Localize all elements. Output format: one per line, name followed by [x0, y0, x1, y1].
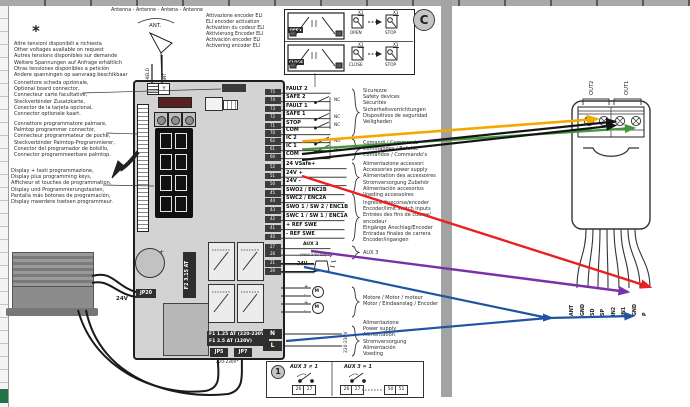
b-unit-fan-wires	[577, 229, 650, 288]
jp20-connector: JP20	[136, 289, 156, 298]
eli-x1-label: X1	[393, 42, 399, 48]
terminal-block: 26	[265, 251, 281, 258]
section-marker-c: C	[413, 9, 435, 31]
encoder-inputs-group-label: Ingressi finecorsa/encoder Encoder/limit…	[363, 200, 433, 243]
antenna-title: Antenna - Antenne - Antena - Antenne	[104, 8, 210, 13]
terminal-block: 70	[265, 130, 281, 137]
relay	[237, 242, 264, 281]
contact-symbols	[315, 97, 331, 159]
terminal-label: SAFE 1	[286, 111, 306, 117]
terminal-block: 60	[265, 154, 281, 161]
terminal-label: - REF SWE	[286, 231, 315, 237]
aux-group-label: AUX 3	[363, 250, 378, 256]
out2-label: OUT2	[589, 71, 595, 95]
nc-contact-label: NC	[334, 114, 340, 119]
terminal-label: COM	[286, 151, 299, 157]
terminal-label: SWO2 / ENC2B	[286, 187, 327, 193]
terminal-block: 75	[265, 89, 281, 96]
terminal-label: SWC2 / ENC2A	[286, 195, 326, 201]
motor-symbol-label: M	[315, 305, 320, 310]
terminal-block: 74	[265, 97, 281, 104]
terminal-label: FAULT 1	[286, 103, 308, 109]
nc-contact-label: NC	[334, 97, 340, 102]
terminal-block: 42	[265, 216, 281, 223]
blue-junction-arrowhead	[543, 314, 554, 322]
aux3-eq-1-label: AUX 3 = 1	[344, 364, 372, 370]
pin-label: IN2	[612, 290, 617, 316]
wire-ic1-to-out1	[302, 128, 634, 150]
terminal-label: IC 1	[286, 143, 297, 149]
eli-open-icon-label: OPEN	[350, 30, 362, 35]
spreadsheet-row-header	[0, 6, 9, 407]
lamp-motor-mains	[281, 253, 342, 346]
wire-24v-to-p	[302, 176, 650, 287]
terminal-block: 43	[265, 207, 281, 214]
jp7-connector: JP7	[234, 348, 252, 357]
seven-segment-display	[155, 128, 193, 218]
terminal-cell-27: 27	[351, 385, 364, 395]
motor-sign: +	[304, 284, 308, 290]
terminal-block: 73	[265, 106, 281, 113]
nc-contact-label: NC	[334, 122, 340, 127]
terminal-block: 41	[265, 225, 281, 232]
pin-label: GND	[633, 290, 638, 316]
terminal-block: 21	[265, 260, 281, 267]
pin-label: P	[643, 290, 648, 316]
motor-sign: -	[304, 308, 306, 314]
terminal-label: SWO 1 / SW 2 / ENC1B	[286, 204, 348, 210]
wiring-diagram-page: { "page": { "marker_c": "C", "asterisk":…	[0, 0, 690, 407]
terminal-block: 45	[265, 190, 281, 197]
motor-group-label: Motore / Motor / moteur Motor / Eindaans…	[363, 295, 438, 307]
terminal-block: 50	[265, 181, 281, 188]
wire-junction-to-gnd	[549, 316, 633, 318]
voltages-note: Altre tensioni disponibili a richiesta O…	[14, 41, 146, 78]
aux3-neq-1-label: AUX 3 ≠ 1	[290, 364, 318, 370]
wire-com-to-out1-b	[302, 126, 615, 161]
image-divider-bar	[441, 0, 452, 397]
mains-voltage-vertical-label: 220-230V	[344, 323, 349, 353]
wire-com-to-out1-a	[302, 122, 615, 155]
onboard-transformer	[163, 303, 209, 356]
terminal-block: 52	[265, 164, 281, 171]
eli-stop-icon-label: STOP	[385, 62, 396, 67]
no-contact-label: NO	[334, 138, 340, 143]
display-keys-note: Display + tasti programmazione, Display …	[11, 168, 143, 205]
pin-label: IN1	[622, 290, 627, 316]
fuse1-line2: F1 2.5 AT (120V)	[209, 338, 269, 345]
eli-note: Attivazione encoder ELI ELI encoder acti…	[206, 14, 286, 49]
fuse1-badge: F1 1.25 AT (220-230V) F1 2.5 AT (120V)	[207, 331, 269, 346]
mains-terminal-l: L	[263, 341, 282, 351]
optional-board-note: Connettore scheda opzionale, Optional bo…	[14, 80, 146, 117]
motor-sign: -	[304, 292, 306, 298]
wire-mains-to-junction	[286, 318, 548, 341]
aux3-sub-label: (MAX 24V 1A)	[300, 252, 326, 257]
external-transformer	[12, 252, 94, 288]
terminal-block: 51	[265, 173, 281, 180]
pin-label: SP	[601, 290, 606, 316]
motor-symbol-label: M	[315, 289, 320, 294]
b-unit-connector	[572, 99, 650, 288]
terminal-block: 71	[265, 123, 281, 130]
terminal-block: 61	[265, 146, 281, 153]
spreadsheet-selected-cell	[0, 389, 8, 403]
fuse2-label: F2 3.15 AT	[185, 254, 190, 296]
capacitor: +	[135, 248, 165, 278]
eli-close-icon-label: CLOSE	[349, 62, 363, 67]
out1-label: OUT1	[624, 71, 630, 95]
terminal-label: + REF SWE	[286, 222, 317, 228]
antenna-label: ANT.	[149, 23, 161, 29]
accessories-power-group-label: Alimentazione accessori Accessories powe…	[363, 161, 436, 198]
terminal-label: COM	[286, 127, 299, 133]
program-button[interactable]	[168, 112, 182, 127]
terminal-block: 72	[265, 114, 281, 121]
palmtop-note: Connettore programmatore palmare, Palmto…	[14, 121, 146, 158]
spreadsheet-column-header	[0, 0, 690, 6]
wire-aux3-to-in1	[311, 251, 628, 292]
jp5-connector: JP5	[210, 348, 228, 357]
terminal-label: IC 2	[286, 135, 297, 141]
b-unit-label: B	[606, 148, 611, 157]
aux3-terminal-label: AUX 3	[303, 242, 318, 247]
terminal-label: SWC 1 / SW 1 / ENC1A	[286, 213, 348, 219]
pin-label: ANT	[570, 290, 575, 316]
eli-open-switch-label: OPEN	[288, 27, 303, 33]
safety-group-label: Sicurezze Safety devices Sécurités Siche…	[363, 88, 427, 125]
fuse1-line1: F1 1.25 AT (220-230V)	[209, 331, 269, 338]
ant-wire-label: ANT	[163, 62, 168, 82]
relay	[208, 284, 235, 323]
motor-sign: +	[304, 300, 308, 306]
terminal-label: 24V +	[286, 170, 303, 176]
terminal-cell-27: 27	[303, 385, 316, 395]
palmtop-programmer-connector	[137, 104, 149, 232]
group-braces	[352, 89, 359, 356]
fuse2-badge: F2 3.15 AT	[183, 252, 196, 298]
relay	[237, 284, 264, 323]
eli-x1-label: X1	[393, 10, 399, 16]
pin-label: GND	[581, 290, 586, 316]
mains-voltage-note: 220-230V*	[216, 359, 238, 364]
terminal-cell-51: 51	[395, 385, 408, 395]
asterisk-footnote-mark: *	[32, 22, 40, 40]
display-connector-strip	[158, 97, 192, 108]
mains-terminal-n: N	[263, 329, 282, 339]
terminal-block: 20	[265, 268, 281, 275]
terminal-label: 24 VSafe+	[286, 161, 315, 167]
no-contact-label: NO	[334, 146, 340, 151]
terminal-block: 44	[265, 198, 281, 205]
terminal-block: 62	[265, 138, 281, 145]
terminal-label: STOP	[286, 120, 301, 126]
power-group-label: Alimentazione Power supply Alimentation …	[363, 320, 406, 357]
eli-x1-label: X1	[358, 10, 364, 16]
pin-label: SD	[591, 290, 596, 316]
terminal-block: 40	[265, 234, 281, 241]
terminal-label: SAFE 2	[286, 94, 306, 100]
wire-lamp-to-junction	[304, 267, 548, 318]
footnote-marker-1: 1	[271, 365, 285, 379]
transformer-24v-wire-label: 24V	[116, 296, 128, 302]
option-board-connector	[222, 84, 246, 92]
small-component-grid	[223, 100, 238, 110]
commands-group-label: Comandi / Commands Commandes / Befehle C…	[363, 140, 427, 159]
small-component	[205, 97, 223, 111]
program-button[interactable]	[154, 112, 168, 127]
lamp-24v-label: 24V	[297, 262, 307, 267]
terminal-label: FAULT 2	[286, 86, 308, 92]
eli-close-switch-label: CLOSE	[288, 59, 304, 65]
eli-x1-label: X1	[358, 42, 364, 48]
program-button[interactable]	[182, 112, 196, 127]
external-transformer-base	[6, 308, 98, 316]
terminal-label: 24V -	[286, 178, 301, 184]
eli-stop-icon-label: STOP	[385, 30, 396, 35]
antenna-terminal-ant: Y	[158, 83, 170, 95]
relay	[208, 242, 235, 281]
